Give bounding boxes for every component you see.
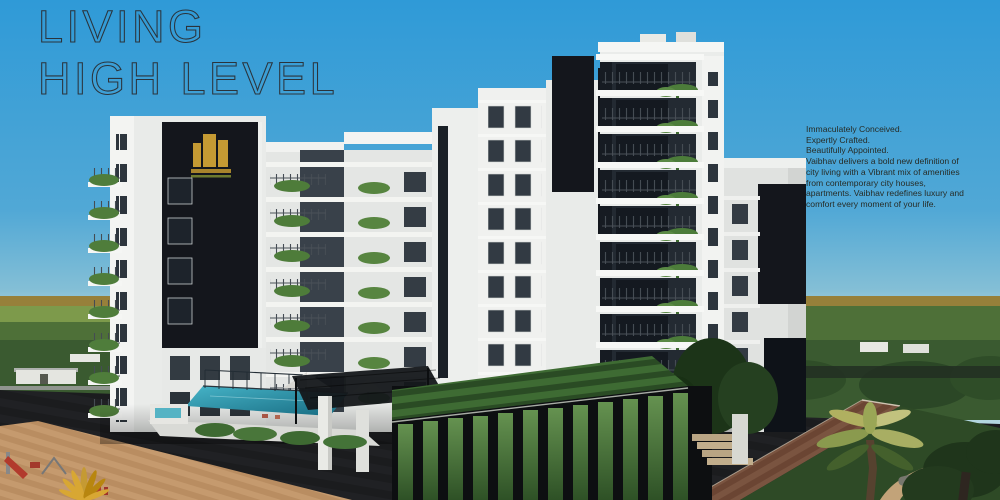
slab-line (478, 100, 546, 103)
wing-black-panel (758, 184, 806, 304)
apartment-render (0, 0, 1000, 500)
left-shed (14, 368, 78, 384)
balcony-row (88, 168, 122, 187)
hero-description: Immaculately Conceived. Expertly Crafted… (806, 124, 988, 210)
black-monolith-panel (552, 56, 594, 192)
left-fence (0, 386, 118, 390)
tower-left (88, 116, 266, 432)
brochure-page: LIVING HIGH LEVEL Immaculately Conceived… (0, 0, 1000, 500)
